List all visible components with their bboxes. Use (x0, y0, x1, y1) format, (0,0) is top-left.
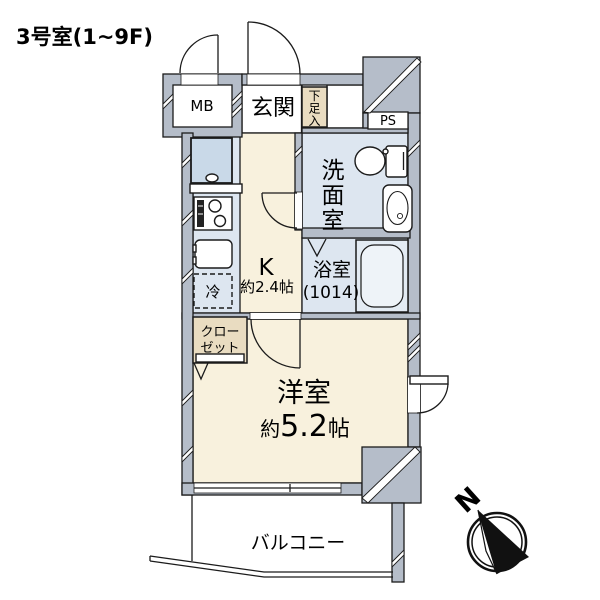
washbasin-drain (397, 213, 402, 218)
right-door-leaf (410, 376, 448, 384)
bathroom-size-label: (1014) (303, 283, 360, 303)
entrance-door-opening (247, 74, 300, 85)
wall-filler (363, 113, 368, 128)
hall-floor (327, 85, 363, 128)
page-title: 3号室(1~9F) (16, 25, 153, 49)
mb-label: MB (190, 97, 213, 115)
kitchen-unit-notch (193, 257, 196, 264)
balcony-label: バルコニー (251, 532, 346, 554)
shoe-storage-label: 下足入 (308, 89, 320, 128)
washroom-door-opening (295, 192, 303, 229)
entrance-label: 玄関 (251, 96, 295, 121)
mb-door-opening (181, 74, 218, 85)
stove-burner (215, 216, 226, 227)
washroom-label: 洗面室 (322, 158, 345, 234)
toilet-knob (383, 149, 388, 154)
kitchen-unit-notch (193, 245, 196, 252)
western-room-label: 洋室 (277, 378, 331, 409)
floor-plan-page: N 3号室(1~9F) MB 玄関 下足入 PS 洗面室 浴室 (1014) K… (0, 0, 600, 600)
bathroom-label: 浴室 (313, 259, 351, 281)
bathtub (361, 245, 403, 307)
refrigerator-label: 冷 (205, 283, 220, 301)
kitchen-size-label: 約2.4帖 (240, 278, 294, 296)
western-door-opening (250, 313, 301, 320)
kitchen-faucet (206, 174, 218, 182)
toilet-bowl (355, 147, 385, 175)
stove-burner (209, 200, 221, 212)
kitchen-counter-edge (190, 184, 242, 193)
ps-label: PS (380, 114, 396, 129)
windows (194, 483, 341, 493)
kitchen-unit (195, 240, 232, 268)
wall-bottom-strip (392, 503, 404, 582)
floor-plan-svg: N 3号室(1~9F) MB 玄関 下足入 PS 洗面室 浴室 (1014) K… (0, 0, 600, 600)
closet-label: クローゼット (200, 325, 239, 356)
